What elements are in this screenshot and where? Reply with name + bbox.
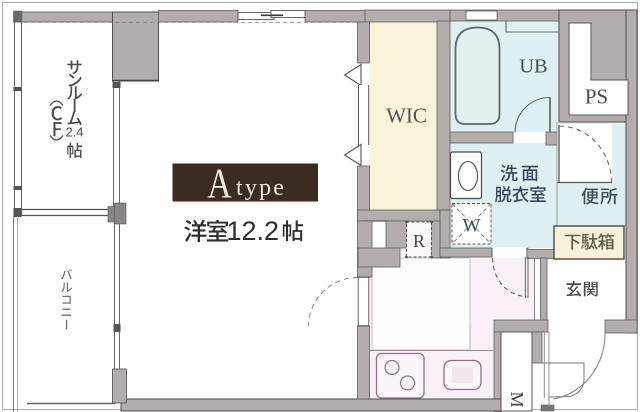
svg-text:R: R <box>413 231 425 251</box>
svg-text:M: M <box>507 391 527 407</box>
svg-text:type: type <box>236 175 286 201</box>
svg-text:A: A <box>207 161 232 207</box>
svg-text:WIC: WIC <box>386 104 427 128</box>
svg-text:PS: PS <box>585 85 608 109</box>
svg-text:12.2: 12.2 <box>227 216 280 246</box>
svg-text:UB: UB <box>519 56 547 78</box>
svg-text:2.4: 2.4 <box>65 125 83 140</box>
svg-text:W: W <box>463 216 481 237</box>
